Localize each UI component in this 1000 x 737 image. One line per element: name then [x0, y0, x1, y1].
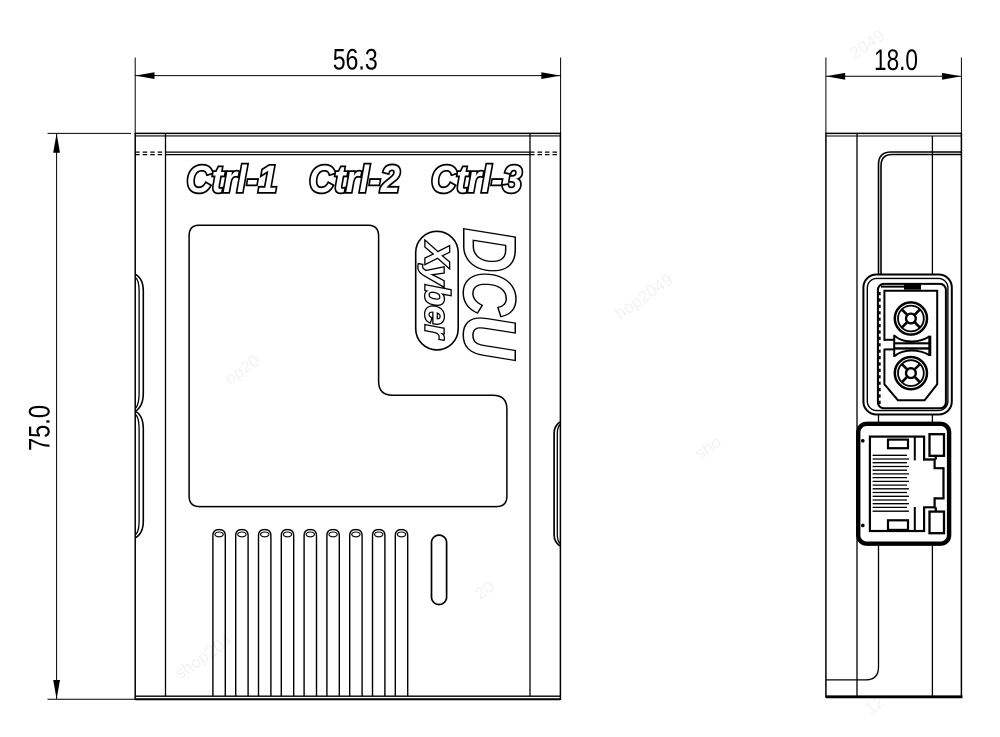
svg-text:DCU: DCU [449, 229, 529, 361]
svg-text:Ctrl-2: Ctrl-2 [309, 159, 400, 201]
svg-text:75.0: 75.0 [24, 405, 57, 451]
svg-text:Ctrl-3: Ctrl-3 [431, 159, 522, 201]
svg-text:18.0: 18.0 [874, 44, 918, 77]
svg-text:Ctrl-1: Ctrl-1 [187, 159, 278, 201]
svg-text:56.3: 56.3 [333, 43, 378, 76]
